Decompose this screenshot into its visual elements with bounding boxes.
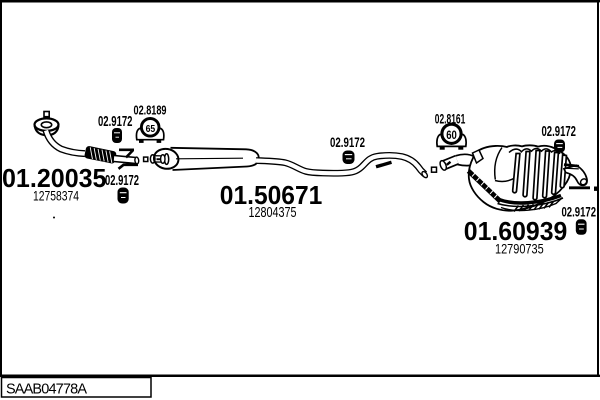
- svg-text:60: 60: [446, 130, 457, 142]
- svg-text:02.9172: 02.9172: [105, 172, 139, 189]
- svg-text:65: 65: [146, 123, 156, 135]
- svg-text:12758374: 12758374: [33, 188, 79, 204]
- svg-text:12790735: 12790735: [495, 240, 544, 256]
- svg-text:02.9172: 02.9172: [98, 113, 133, 130]
- svg-text:02.8189: 02.8189: [134, 102, 167, 117]
- svg-text:SAAB04778A: SAAB04778A: [6, 382, 87, 398]
- svg-text:02.9172: 02.9172: [330, 134, 365, 150]
- svg-text:12804375: 12804375: [249, 205, 297, 221]
- svg-text:02.9172: 02.9172: [542, 124, 577, 140]
